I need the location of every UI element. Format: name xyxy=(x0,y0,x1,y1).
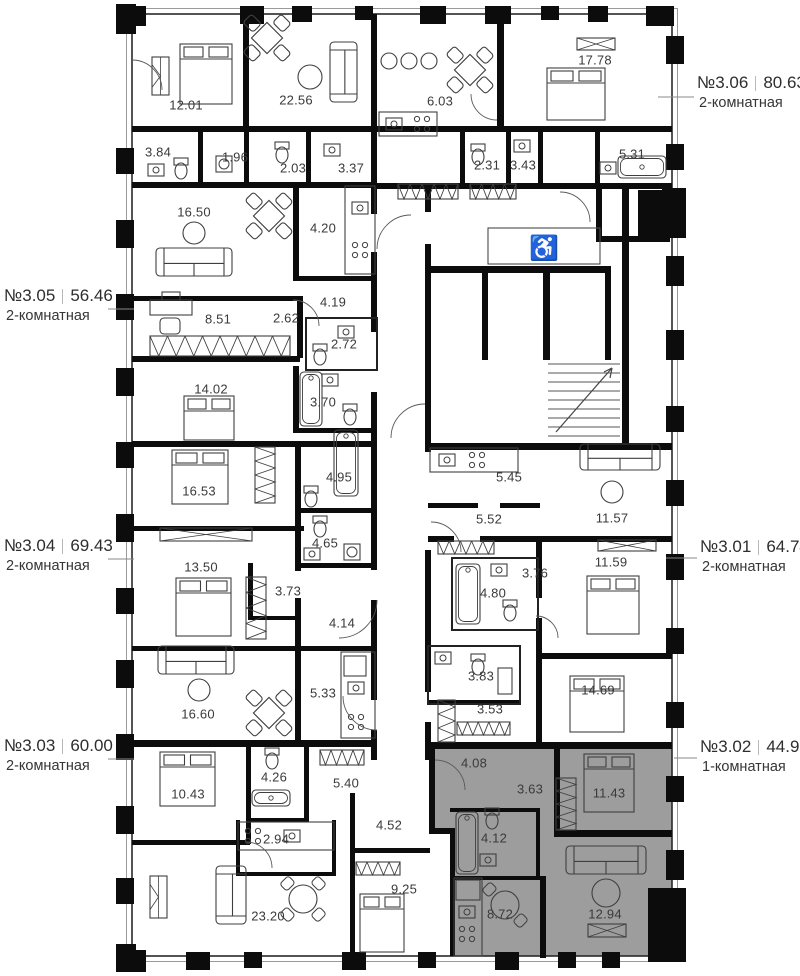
apartment-type: 2-комнатная xyxy=(699,95,800,111)
room-area-label: 14.02 xyxy=(194,382,228,397)
apartment-number: №3.02 xyxy=(700,738,751,757)
room-area-label: 4.12 xyxy=(481,831,507,846)
apartment-callout-3-02[interactable]: №3.0244.92 1-комнатная xyxy=(700,738,800,775)
room-area-label: 11.57 xyxy=(596,511,629,526)
room-area-label: 3.76 xyxy=(522,566,548,581)
room-area-label: 13.50 xyxy=(184,560,218,575)
room-area-label: 8.51 xyxy=(205,312,231,327)
room-area-label: 4.52 xyxy=(376,818,402,833)
apartment-type: 1-комнатная xyxy=(702,759,800,775)
room-area-label: 4.26 xyxy=(261,770,287,785)
apartment-callout-3-03[interactable]: №3.0360.00 2-комнатная xyxy=(4,737,113,774)
divider xyxy=(62,539,63,554)
room-area-label: 5.45 xyxy=(496,470,522,485)
room-area-label: 16.50 xyxy=(177,205,211,220)
apartment-callout-3-04[interactable]: №3.0469.43 2-комнатная xyxy=(4,537,113,574)
divider xyxy=(62,739,63,754)
divider xyxy=(758,740,759,755)
highlighted-apartment-3-02[interactable] xyxy=(432,745,672,956)
room-area-label: 3.37 xyxy=(338,161,364,176)
apartment-type: 2-комнатная xyxy=(6,758,113,774)
room-area-label: 5.33 xyxy=(310,686,336,701)
apartment-callout-3-05[interactable]: №3.0556.46 2-комнатная xyxy=(4,287,113,324)
apartment-area: 64.74 xyxy=(766,538,800,557)
room-area-label: 3.53 xyxy=(477,702,503,717)
room-area-label: 11.43 xyxy=(593,786,626,801)
apartment-area: 80.63 xyxy=(763,74,800,93)
room-area-label: 3.83 xyxy=(468,669,494,684)
room-area-label: 4.08 xyxy=(461,756,487,771)
apartment-number: №3.06 xyxy=(697,74,748,93)
apartment-type: 2-комнатная xyxy=(702,559,800,575)
room-area-label: 10.43 xyxy=(171,787,205,802)
room-area-label: 3.70 xyxy=(310,395,336,410)
apartment-number: №3.03 xyxy=(4,737,55,756)
divider xyxy=(62,289,63,304)
room-area-label: 3.63 xyxy=(517,782,543,797)
room-area-label: 8.72 xyxy=(487,907,513,922)
room-area-label: 4.95 xyxy=(326,470,352,485)
divider xyxy=(758,540,759,555)
room-area-label: 3.84 xyxy=(145,145,171,160)
apartment-area: 60.00 xyxy=(70,737,113,756)
room-area-label: 5.40 xyxy=(333,776,359,791)
room-area-label: 12.94 xyxy=(588,907,622,922)
apartment-callout-3-06[interactable]: №3.0680.63 2-комнатная xyxy=(697,74,800,111)
apartment-callout-3-01[interactable]: №3.0164.74 2-комнатная xyxy=(700,538,800,575)
room-area-label: 16.53 xyxy=(182,484,216,499)
wheelchair-accessible-icon: ♿ xyxy=(529,234,559,262)
apartment-area: 69.43 xyxy=(70,537,113,556)
room-area-label: 12.01 xyxy=(169,98,203,113)
apartment-area: 44.92 xyxy=(766,738,800,757)
room-area-label: 1.96 xyxy=(222,150,248,165)
apartment-number: №3.05 xyxy=(4,287,55,306)
room-area-label: 6.03 xyxy=(427,94,453,109)
room-area-label: 2.94 xyxy=(263,832,289,847)
room-area-label: 11.59 xyxy=(595,555,628,570)
room-area-label: 4.80 xyxy=(480,586,506,601)
room-area-label: 4.65 xyxy=(312,536,338,551)
apartment-number: №3.01 xyxy=(700,538,751,557)
room-area-label: 2.03 xyxy=(280,161,306,176)
room-area-label: 4.20 xyxy=(310,221,336,236)
room-area-label: 17.78 xyxy=(578,53,612,68)
room-area-label: 22.56 xyxy=(279,93,313,108)
apartment-type: 2-комнатная xyxy=(6,558,113,574)
apartment-type: 2-комнатная xyxy=(6,308,113,324)
room-area-label: 14.69 xyxy=(581,683,615,698)
room-area-label: 5.52 xyxy=(476,512,502,527)
room-area-label: 9.25 xyxy=(391,882,417,897)
room-area-label: 3.43 xyxy=(510,158,536,173)
room-area-label: 2.31 xyxy=(474,158,500,173)
apartment-area: 56.46 xyxy=(70,287,113,306)
room-area-label: 2.62 xyxy=(273,311,299,326)
apartment-number: №3.04 xyxy=(4,537,55,556)
room-area-label: 4.19 xyxy=(320,295,346,310)
floor-plan-page: ♿ 12.0122.563.841.962.033.376.0317.782.3… xyxy=(0,0,800,976)
room-area-label: 4.14 xyxy=(329,616,355,631)
divider xyxy=(755,76,756,91)
room-area-label: 16.60 xyxy=(181,707,215,722)
room-area-label: 3.73 xyxy=(275,584,301,599)
room-area-label: 5.31 xyxy=(619,147,645,162)
room-area-label: 23.20 xyxy=(251,909,285,924)
room-area-label: 2.72 xyxy=(331,337,357,352)
